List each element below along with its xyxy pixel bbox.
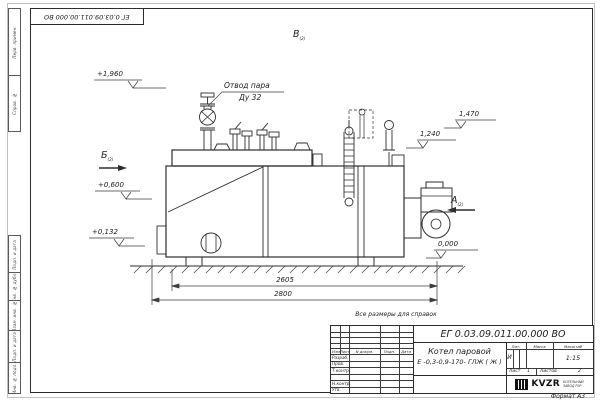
- view-label-v: В(2): [293, 29, 305, 41]
- tb-sheets-label: Листов: [540, 369, 557, 374]
- view-arrows: [99, 165, 475, 213]
- kvzr-tagline: КОТЕЛЬНЫЙ ЗАВОД РЭР: [563, 380, 584, 388]
- tb-line: [331, 332, 413, 333]
- elevation-label-1960: +1,960: [97, 70, 123, 78]
- tb-line: [331, 387, 413, 388]
- view-sheet-ref: (2): [300, 36, 306, 41]
- supports-and-ground: [130, 257, 465, 273]
- tb-lit-value: И: [506, 354, 513, 361]
- kvzr-logo-icon: [515, 379, 528, 390]
- tb-line: [380, 326, 381, 393]
- tb-product-line2: Е -0,3-0,9-170- ГЛЖ ( Ж ): [413, 358, 506, 366]
- tb-mass-header: Масса: [526, 344, 553, 349]
- tb-company: KVZR КОТЕЛЬНЫЙ ЗАВОД РЭР: [508, 377, 591, 391]
- steam-outlet-callout-line1: Отвод пара: [224, 81, 270, 90]
- tb-sheet-value: 1: [527, 369, 530, 374]
- tb-lit-header: Лит.: [506, 344, 526, 349]
- tb-line: [519, 349, 520, 368]
- tb-sheet-label: Лист: [509, 369, 520, 374]
- title-block: ЕГ 0.03.09.011.00.000 ВО Изм Лист N доку…: [330, 325, 594, 394]
- tb-row-nkontr: Н.контр.: [332, 381, 351, 386]
- tb-line: [331, 374, 413, 375]
- tb-scale-value: 1:15: [553, 354, 593, 362]
- view-sheet-ref: (2): [108, 157, 114, 162]
- tb-product-line1: Котел паровой: [413, 347, 506, 356]
- tb-line: [413, 375, 593, 376]
- elevation-label-0132: +0,132: [92, 228, 118, 236]
- kvzr-logo-text: KVZR: [531, 379, 560, 389]
- elevation-label-0600: +0,600: [98, 181, 124, 189]
- boiler-shell: [157, 143, 404, 257]
- tb-scale-header: Масштаб: [553, 344, 593, 349]
- tb-col-dokum: N докум.: [349, 349, 380, 354]
- tb-doc-number: ЕГ 0.03.09.011.00.000 ВО: [413, 329, 593, 340]
- view-label-b: Б(2): [101, 150, 113, 162]
- elevation-label-1470: 1,470: [459, 110, 479, 118]
- reference-note: Все размеры для справок: [350, 311, 442, 318]
- view-label-a: А(2): [451, 195, 463, 207]
- dimension-2605: 2605: [255, 276, 315, 284]
- tb-row-tkontr: Т.контр.: [332, 368, 350, 373]
- tb-sheets-value: 2: [578, 369, 581, 374]
- tb-line: [331, 343, 413, 344]
- tb-col-podp: Подп.: [380, 349, 399, 354]
- tb-line: [331, 337, 413, 338]
- elevation-label-1240: 1,240: [420, 130, 440, 138]
- tb-line: [399, 326, 400, 393]
- elevation-label-0000: 0,000: [438, 240, 458, 248]
- kvzr-tagline-line2: ЗАВОД РЭР: [563, 384, 584, 388]
- burner-unit: [404, 182, 452, 238]
- tb-row-utv: Утв.: [332, 387, 341, 392]
- tb-row-prov: Пров.: [332, 361, 344, 366]
- level-marks: [89, 80, 496, 258]
- dimension-2800: 2800: [253, 290, 313, 298]
- tb-row-razrab: Разраб.: [332, 355, 348, 360]
- tb-col-list: Лист: [340, 349, 349, 354]
- view-sheet-ref: (2): [458, 202, 464, 207]
- tb-col-data: Дата: [399, 349, 413, 354]
- steam-outlet-callout-line2: Ду 32: [239, 93, 261, 102]
- tb-line: [536, 368, 537, 375]
